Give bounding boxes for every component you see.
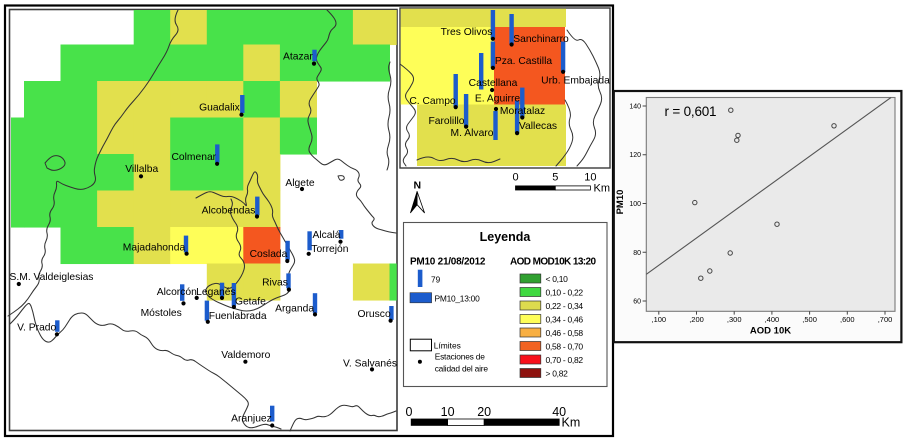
svg-text:C. Campo: C. Campo: [409, 96, 456, 107]
svg-text:Algete: Algete: [285, 178, 314, 189]
svg-text:,200: ,200: [689, 315, 704, 324]
svg-text:N: N: [414, 180, 422, 192]
svg-text:Farolillo: Farolillo: [428, 116, 464, 127]
svg-text:Leganés: Leganés: [196, 287, 236, 298]
svg-text:,100: ,100: [651, 315, 666, 324]
svg-text:,400: ,400: [765, 315, 780, 324]
svg-text:AOD MOD10K 13:20: AOD MOD10K 13:20: [510, 257, 596, 268]
svg-text:Estaciones de: Estaciones de: [435, 352, 486, 362]
svg-text:Getafe: Getafe: [235, 296, 266, 307]
svg-text:Coslada: Coslada: [250, 249, 288, 260]
svg-text:,600: ,600: [840, 315, 855, 324]
svg-text:Vallecas: Vallecas: [519, 121, 557, 132]
svg-text:79: 79: [431, 274, 441, 284]
svg-text:Moratalaz: Moratalaz: [500, 106, 545, 117]
svg-text:Villalba: Villalba: [125, 164, 158, 175]
svg-text:Rivas: Rivas: [262, 278, 288, 289]
svg-text:10: 10: [441, 405, 455, 419]
svg-text:0,10 - 0,22: 0,10 - 0,22: [546, 287, 584, 297]
svg-text:120: 120: [629, 152, 641, 159]
svg-text:Castellana: Castellana: [469, 78, 518, 89]
svg-text:0: 0: [512, 172, 518, 184]
svg-text:PM10: PM10: [615, 190, 626, 215]
svg-text:M. Alvaro: M. Alvaro: [451, 128, 494, 139]
svg-text:,700: ,700: [878, 315, 893, 324]
svg-text:100: 100: [629, 201, 641, 208]
svg-text:Tres Olivos: Tres Olivos: [441, 27, 493, 38]
svg-text:Fuenlabrada: Fuenlabrada: [209, 311, 267, 322]
svg-text:V. Salvanés: V. Salvanés: [343, 358, 397, 369]
svg-text:0: 0: [406, 405, 413, 419]
svg-text:20: 20: [477, 405, 491, 419]
svg-text:Pza. Castilla: Pza. Castilla: [495, 56, 552, 67]
svg-text:,300: ,300: [727, 315, 742, 324]
svg-text:E. Aguirre: E. Aguirre: [475, 94, 520, 105]
svg-text:Atazar: Atazar: [283, 52, 313, 63]
svg-text:0,34 - 0,46: 0,34 - 0,46: [546, 314, 584, 324]
svg-text:Valdemoro: Valdemoro: [221, 350, 270, 361]
svg-text:Km: Km: [594, 183, 611, 195]
svg-text:> 0,82: > 0,82: [546, 368, 569, 378]
svg-text:Aranjuez: Aranjuez: [231, 414, 272, 425]
svg-text:Límites: Límites: [434, 340, 461, 350]
svg-text:Orusco: Orusco: [357, 309, 390, 320]
svg-text:V. Prado: V. Prado: [17, 322, 56, 333]
svg-text:Km: Km: [562, 416, 581, 430]
svg-text:0,22 - 0,34: 0,22 - 0,34: [546, 301, 584, 311]
svg-text:Alcorcón: Alcorcón: [157, 287, 197, 298]
svg-text:Sanchinarro: Sanchinarro: [513, 34, 569, 45]
svg-text:Alcalá: Alcalá: [312, 230, 340, 241]
svg-text:60: 60: [633, 299, 641, 306]
svg-text:Urb. Embajada: Urb. Embajada: [541, 75, 610, 86]
svg-text:Torrejón: Torrejón: [311, 244, 348, 255]
svg-text:0,46 - 0,58: 0,46 - 0,58: [546, 328, 584, 338]
svg-text:0,58 - 0,70: 0,58 - 0,70: [546, 341, 584, 351]
svg-text:AOD 10K: AOD 10K: [750, 326, 791, 337]
svg-text:Leyenda: Leyenda: [480, 230, 532, 244]
svg-text:Colmenar: Colmenar: [171, 152, 216, 163]
svg-text:Alcobendas: Alcobendas: [202, 205, 256, 216]
svg-text:80: 80: [633, 250, 641, 257]
svg-text:5: 5: [552, 172, 558, 184]
svg-text:Guadalix: Guadalix: [199, 103, 240, 114]
svg-text:0,70 - 0,82: 0,70 - 0,82: [546, 355, 584, 365]
svg-text:PM10_13:00: PM10_13:00: [435, 293, 481, 303]
svg-text:< 0,10: < 0,10: [546, 274, 569, 284]
svg-text:calidad del aire: calidad del aire: [435, 363, 489, 373]
svg-text:Majadahonda: Majadahonda: [123, 242, 186, 253]
svg-text:PM10 21/08/2012: PM10 21/08/2012: [410, 257, 486, 268]
svg-text:,500: ,500: [802, 315, 817, 324]
svg-text:Móstoles: Móstoles: [141, 308, 182, 319]
svg-text:r = 0,601: r = 0,601: [665, 104, 717, 119]
svg-text:Arganda: Arganda: [275, 303, 314, 314]
svg-text:140: 140: [629, 104, 641, 111]
svg-text:S.M. Valdeiglesias: S.M. Valdeiglesias: [10, 272, 94, 283]
